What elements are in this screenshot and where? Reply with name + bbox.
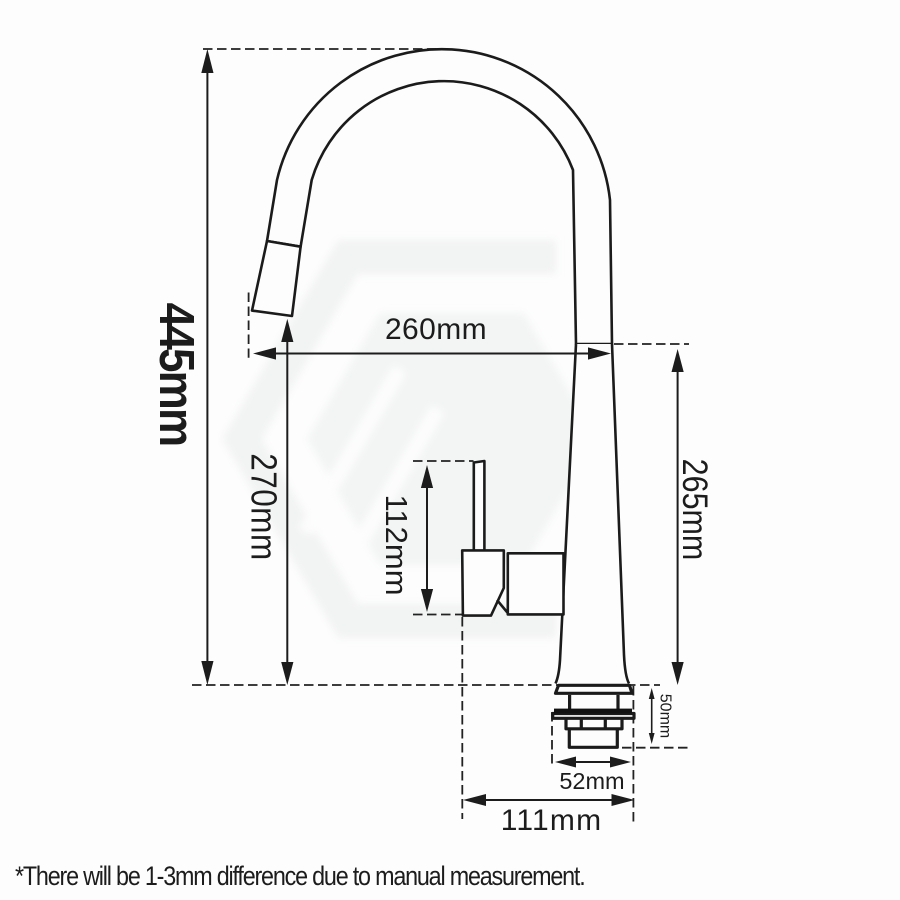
svg-text:111mm: 111mm	[501, 804, 603, 837]
svg-text:50mm: 50mm	[657, 694, 674, 738]
svg-text:265mm: 265mm	[676, 459, 715, 561]
svg-text:52mm: 52mm	[559, 768, 624, 794]
svg-text:270mm: 270mm	[243, 453, 284, 561]
svg-text:*There will be 1-3mm differenc: *There will be 1-3mm difference due to m…	[15, 862, 584, 892]
svg-text:445mm: 445mm	[149, 303, 204, 446]
svg-text:112mm: 112mm	[379, 494, 414, 595]
svg-text:260mm: 260mm	[385, 313, 487, 346]
